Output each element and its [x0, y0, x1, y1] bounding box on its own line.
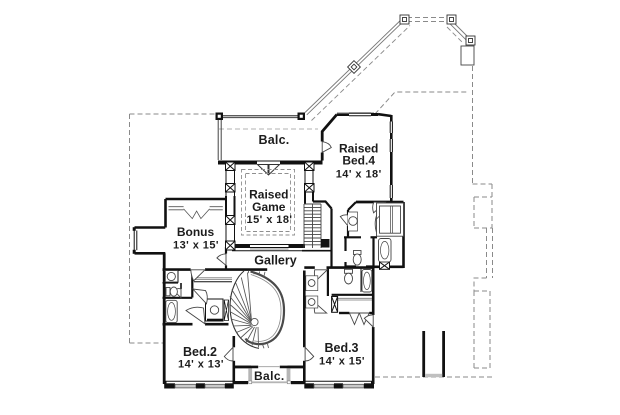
svg-text:Balc.: Balc.: [259, 133, 290, 147]
svg-text:Bed.4: Bed.4: [342, 153, 375, 167]
svg-text:Bonus: Bonus: [177, 225, 215, 239]
svg-text:15' x 18': 15' x 18': [247, 214, 293, 226]
svg-text:Gallery: Gallery: [254, 254, 296, 268]
svg-text:14' x 13': 14' x 13': [178, 359, 224, 371]
svg-text:14' x 18': 14' x 18': [336, 168, 382, 180]
svg-text:13' x 15': 13' x 15': [173, 239, 219, 251]
svg-text:Game: Game: [252, 200, 286, 214]
svg-text:Bed.3: Bed.3: [324, 341, 358, 355]
svg-text:Bed.2: Bed.2: [183, 345, 217, 359]
svg-text:Balc.: Balc.: [254, 369, 285, 383]
svg-text:14' x 15': 14' x 15': [319, 356, 365, 368]
